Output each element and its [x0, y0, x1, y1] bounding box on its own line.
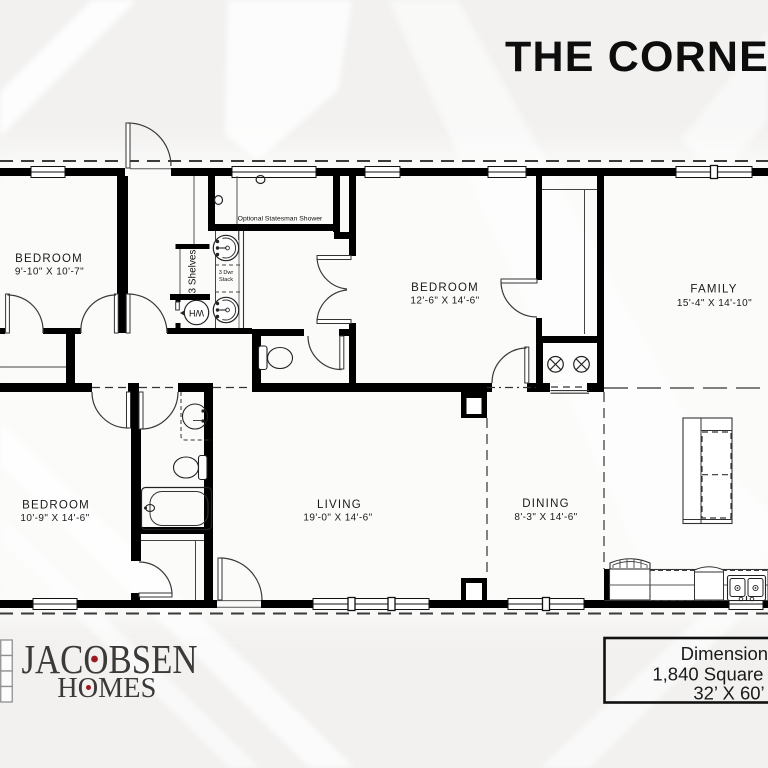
- svg-text:3 Shelves: 3 Shelves: [188, 250, 199, 294]
- svg-text:32’ X 60’: 32’ X 60’: [693, 683, 764, 704]
- svg-text:FAMILY: FAMILY: [690, 284, 737, 296]
- svg-text:Stack: Stack: [219, 277, 233, 283]
- svg-text:3 Dwr: 3 Dwr: [219, 270, 234, 276]
- svg-text:DINING: DINING: [522, 498, 569, 510]
- svg-text:BEDROOM: BEDROOM: [15, 253, 83, 265]
- svg-text:BEDROOM: BEDROOM: [411, 282, 479, 294]
- svg-text:10'-9" X 14'-6": 10'-9" X 14'-6": [20, 513, 89, 524]
- svg-text:WH: WH: [189, 308, 204, 318]
- svg-text:15'-4" X 14'-10": 15'-4" X 14'-10": [677, 298, 752, 309]
- svg-text:Optional Statesman Shower: Optional Statesman Shower: [238, 216, 323, 223]
- svg-text:9'-10" X 10'-7": 9'-10" X 10'-7": [15, 267, 84, 278]
- svg-text:8'-3" X 14'-6": 8'-3" X 14'-6": [514, 512, 577, 523]
- svg-text:LIVING: LIVING: [317, 499, 362, 511]
- svg-text:THE CORNER: THE CORNER: [505, 33, 768, 81]
- svg-text:19'-0" X 14'-6": 19'-0" X 14'-6": [303, 513, 372, 524]
- svg-text:12'-6" X 14'-6": 12'-6" X 14'-6": [410, 296, 479, 307]
- svg-text:Dimensions: Dimensions: [681, 643, 768, 664]
- svg-text:HOMES: HOMES: [57, 672, 156, 704]
- svg-text:BEDROOM: BEDROOM: [22, 500, 90, 512]
- svg-text:1,840 Square Feet: 1,840 Square Feet: [652, 664, 768, 685]
